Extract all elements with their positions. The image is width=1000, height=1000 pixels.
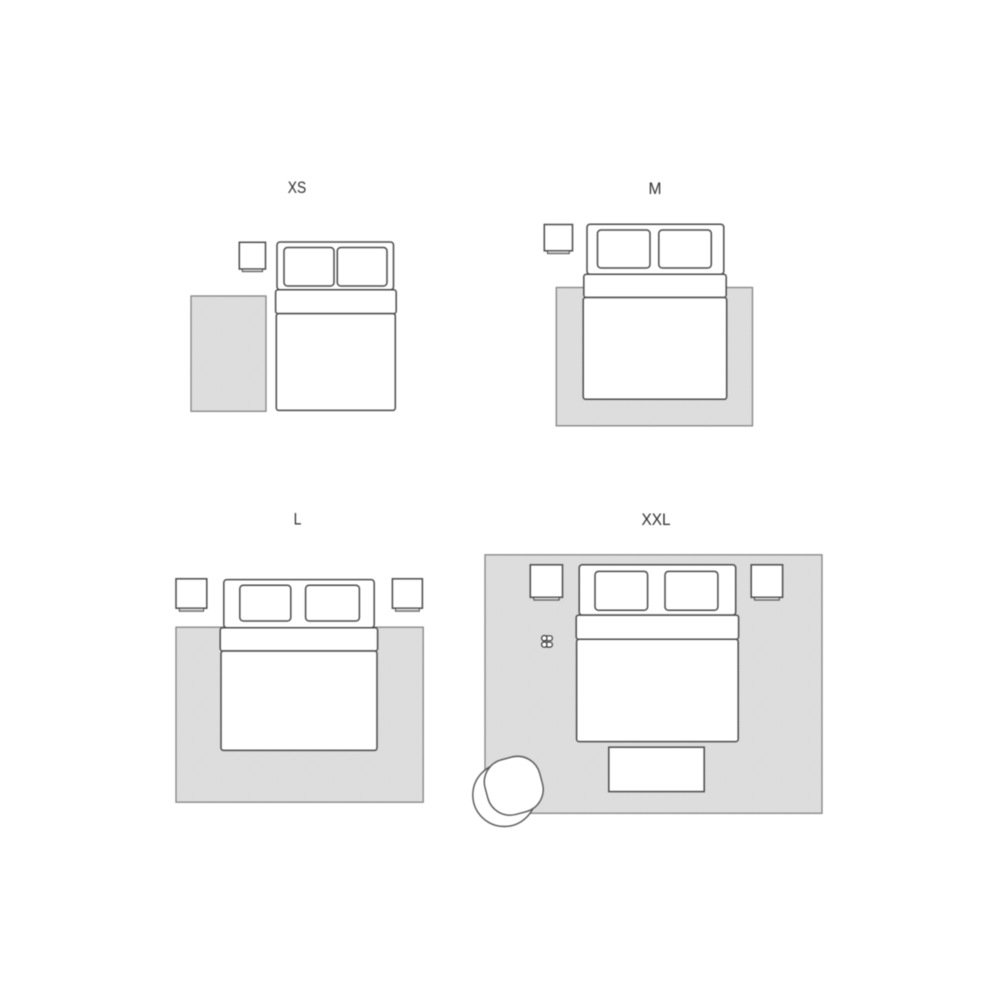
svg-text:M: M <box>649 179 662 198</box>
svg-text:XS: XS <box>288 178 307 197</box>
svg-text:XXL: XXL <box>642 510 671 529</box>
svg-text:L: L <box>294 510 302 529</box>
